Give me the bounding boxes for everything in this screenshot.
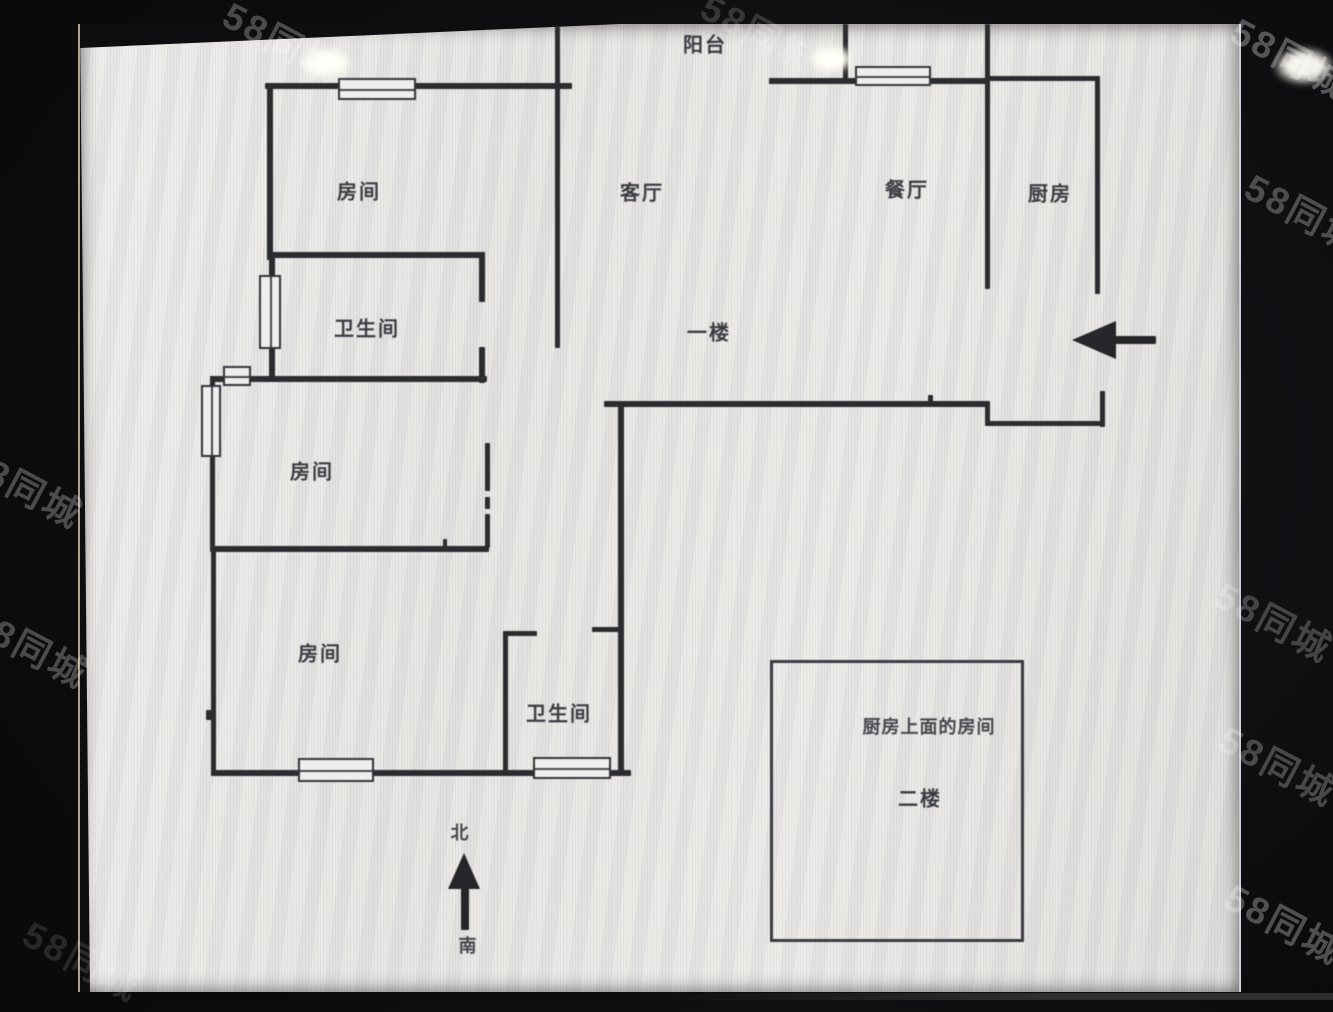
wall [503,631,537,636]
window-symbol [533,757,611,779]
living-room-label: 客厅 [620,177,664,206]
watermark-58tongcheng: 58同城 [1237,158,1333,265]
screen: { "watermark": { "text": "58同城", "color"… [0,0,1333,1000]
glare-spot [298,46,354,80]
window-symbol [259,275,281,349]
entrance-arrow-shaft [1114,336,1156,344]
floorplan-photo: 阳台房间客厅餐厅厨房卫生间一楼房间房间卫生间厨房上面的房间二楼北南 [78,24,1241,992]
window-symbol [855,66,931,86]
wall [206,710,212,720]
room-above-kitchen-label: 厨房上面的房间 [863,713,996,739]
wall [212,546,489,552]
glare-spot [806,44,856,74]
room-middle-label: 房间 [290,456,334,485]
floor-1-label: 一楼 [687,317,731,346]
wall [485,443,490,491]
wall [269,376,487,382]
wall [985,76,1100,81]
wall [267,83,273,260]
wall [618,403,624,773]
floorplan-drawing: 阳台房间客厅餐厅厨房卫生间一楼房间房间卫生间厨房上面的房间二楼北南 [80,24,1239,992]
north-arrow-icon [448,853,480,889]
wall [443,539,447,548]
window-symbol [298,758,374,782]
room-lower-label: 房间 [298,638,342,667]
compass-south-label: 南 [459,932,478,958]
window-symbol [201,385,221,457]
bezel-reflection [640,993,1333,1000]
wall [1100,391,1105,427]
glare-spot [1272,46,1333,86]
wall [485,514,490,548]
wall [928,395,933,403]
bathroom-upper-label: 卫生间 [334,313,400,342]
entrance-arrow-icon [1072,321,1116,359]
wall [485,497,490,509]
window-symbol [338,78,416,100]
wall [503,631,508,773]
balcony-label: 阳台 [683,29,727,58]
window-symbol [223,366,251,386]
north-arrow-shaft [461,886,469,930]
room-upper-left-label: 房间 [337,176,381,205]
wall [1095,76,1100,294]
wall [265,83,572,89]
wall [479,252,485,302]
wall [555,26,560,348]
wall [211,546,216,776]
second-floor-room-outline [770,660,1024,942]
wall [985,421,1105,426]
wall [985,24,990,289]
floor-2-label: 二楼 [898,783,942,812]
compass-north-label: 北 [451,819,470,845]
wall [267,252,485,258]
kitchen-label: 厨房 [1028,178,1072,207]
bathroom-lower-label: 卫生间 [526,698,592,727]
dining-room-label: 餐厅 [885,174,929,203]
